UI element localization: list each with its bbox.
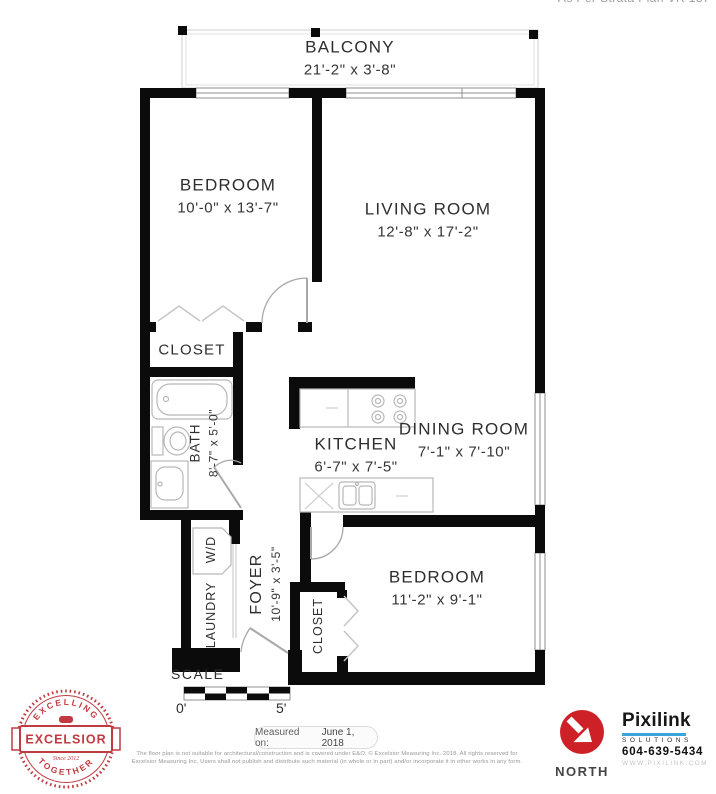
floor-plan-page: As Per Strata Plan VR 137 (0, 0, 716, 794)
kitchen-sink-icon (339, 482, 375, 509)
disclaimer-line-2: Excelsior Measuring Inc. Users shall not… (112, 758, 542, 766)
balcony-label: BALCONY 21'-2" x 3'-8" (304, 38, 396, 79)
room-name: BEDROOM (389, 568, 485, 588)
room-dims: 6'-7" x 7'-5" (314, 458, 397, 475)
north-circle (560, 710, 604, 754)
scale-bar (184, 687, 290, 700)
north-label: NORTH (555, 764, 609, 779)
appliance-label: W/D (204, 536, 218, 563)
excelsior-badge: EXCELLING EXCELSIOR Since 2012 TOGETHER (8, 684, 124, 794)
room-name: KITCHEN (314, 435, 397, 455)
bath-label: BATH 8'-7" x 5'-0" (187, 409, 220, 477)
floor-plan-drawing (0, 0, 716, 794)
room-dims: 21'-2" x 3'-8" (304, 61, 396, 78)
scale-label: SCALE (171, 666, 224, 682)
badge-banner-text: EXCELSIOR (25, 733, 106, 747)
room-name: LAUNDRY (204, 582, 218, 649)
measured-on-label: Measured on: (255, 727, 314, 749)
disclaimer-line-1: The floor plan is not suitable for archi… (112, 750, 542, 758)
room-name: DINING ROOM (399, 420, 529, 440)
foyer-label: FOYER 10'-9" x 3'-5" (248, 546, 284, 622)
bedroom2-label: BEDROOM 11'-2" x 9'-1" (389, 568, 485, 609)
bathroom-sink-icon (151, 461, 188, 508)
room-dims: 7'-1" x 7'-10" (399, 443, 529, 460)
room-dims: 8'-7" x 5'-0" (207, 409, 221, 477)
vendor-logo-block: Pixilink SOLUTIONS 604-639-5434 WWW.PIXI… (622, 710, 714, 767)
room-name: BEDROOM (177, 176, 278, 196)
kitchen-label: KITCHEN 6'-7" x 7'-5" (314, 435, 397, 476)
vendor-website: WWW.PIXILINK.COM (622, 760, 714, 767)
room-name: LIVING ROOM (365, 200, 492, 220)
living-room-label: LIVING ROOM 12'-8" x 17'-2" (365, 200, 492, 241)
measured-on-date: June 1, 2018 (322, 727, 377, 749)
room-name: BALCONY (304, 38, 396, 58)
vendor-tagline: SOLUTIONS (622, 737, 714, 744)
vendor-phone: 604-639-5434 (622, 746, 714, 758)
dining-room-label: DINING ROOM 7'-1" x 7'-10" (399, 420, 529, 461)
bedroom1-label: BEDROOM 10'-0" x 13'-7" (177, 176, 278, 217)
toilet-icon (152, 427, 190, 455)
room-dims: 11'-2" x 9'-1" (389, 591, 485, 608)
laundry-label: LAUNDRY W/D (202, 536, 220, 648)
vendor-blue-rule (622, 733, 686, 736)
disclaimer-text: The floor plan is not suitable for archi… (112, 750, 542, 766)
badge-since-text: Since 2012 (53, 756, 80, 762)
vendor-brand: Pixilink (622, 710, 714, 732)
room-name: CLOSET (158, 341, 225, 358)
north-compass: NORTH (552, 706, 612, 784)
scale-zero-label: 0' (176, 700, 186, 716)
badge-crest-mark (59, 716, 73, 723)
measured-on-pill: Measured on: June 1, 2018 (254, 726, 378, 749)
closet1-label: CLOSET (158, 341, 225, 358)
room-dims: 10'-9" x 3'-5" (270, 546, 284, 622)
room-name: CLOSET (311, 598, 325, 654)
room-name: FOYER (248, 546, 266, 622)
room-name: BATH (187, 409, 203, 477)
room-dims: 10'-0" x 13'-7" (177, 199, 278, 216)
scale-five-label: 5' (276, 700, 286, 716)
closet2-label: CLOSET (311, 598, 325, 654)
room-dims: 12'-8" x 17'-2" (365, 223, 492, 240)
